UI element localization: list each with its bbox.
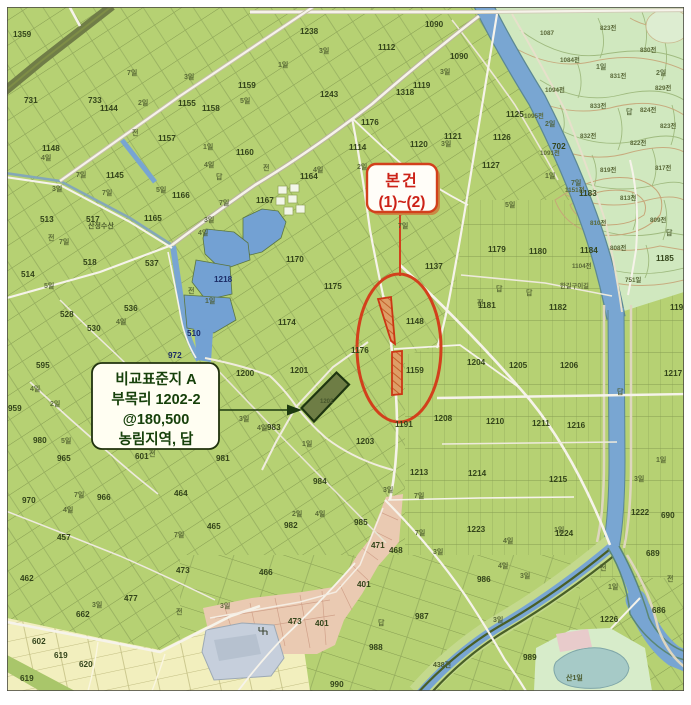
svg-text:7일: 7일 [127, 68, 137, 77]
svg-text:@180,500: @180,500 [123, 412, 190, 428]
svg-text:4일: 4일 [204, 160, 214, 169]
svg-text:2일: 2일 [292, 509, 302, 518]
svg-text:1216: 1216 [567, 421, 586, 430]
svg-text:1179: 1179 [488, 245, 506, 254]
svg-text:981: 981 [216, 454, 230, 463]
svg-text:3일: 3일 [52, 184, 62, 193]
svg-text:7일: 7일 [174, 530, 184, 539]
svg-text:662: 662 [76, 610, 90, 619]
svg-text:970: 970 [22, 496, 36, 505]
svg-text:1137: 1137 [425, 262, 443, 271]
svg-text:1084전: 1084전 [560, 55, 580, 64]
svg-text:1일: 1일 [596, 62, 606, 71]
svg-text:1일: 1일 [203, 142, 213, 151]
svg-text:3일: 3일 [204, 215, 214, 224]
svg-text:한길구이길: 한길구이길 [560, 281, 589, 290]
svg-text:601: 601 [135, 452, 149, 461]
svg-text:전: 전 [600, 563, 606, 572]
svg-text:부목리 1202-2: 부목리 1202-2 [111, 391, 200, 408]
svg-text:466: 466 [259, 568, 273, 577]
svg-text:619: 619 [54, 651, 68, 660]
svg-text:7일: 7일 [76, 170, 86, 179]
svg-text:1202: 1202 [320, 399, 334, 405]
svg-text:1208: 1208 [434, 414, 453, 423]
svg-text:1119: 1119 [413, 81, 431, 90]
svg-text:4일: 4일 [198, 228, 208, 237]
svg-text:1180: 1180 [529, 247, 547, 256]
svg-text:1148: 1148 [42, 144, 60, 153]
svg-text:808전: 808전 [610, 243, 627, 252]
svg-text:3일: 3일 [383, 485, 393, 494]
svg-text:1일: 1일 [554, 525, 564, 534]
svg-text:982: 982 [284, 521, 298, 530]
svg-text:530: 530 [87, 324, 101, 333]
svg-text:731: 731 [24, 96, 38, 105]
svg-text:4일: 4일 [30, 384, 40, 393]
svg-text:1127: 1127 [482, 161, 500, 170]
svg-text:답: 답 [526, 288, 533, 297]
svg-text:답: 답 [617, 387, 624, 396]
svg-text:1359: 1359 [13, 30, 32, 39]
svg-text:833전: 833전 [590, 101, 607, 110]
svg-text:4일: 4일 [315, 509, 325, 518]
svg-text:1223: 1223 [467, 525, 486, 534]
svg-text:1159: 1159 [406, 366, 424, 375]
svg-text:1211: 1211 [532, 419, 550, 428]
svg-text:1094전: 1094전 [545, 85, 565, 94]
svg-text:비교표준지 A: 비교표준지 A [115, 371, 197, 388]
svg-text:465: 465 [207, 522, 221, 531]
svg-text:1125: 1125 [506, 110, 524, 119]
svg-text:536: 536 [124, 304, 138, 313]
svg-text:답: 답 [216, 172, 223, 181]
svg-text:537: 537 [145, 259, 159, 268]
svg-text:3일: 3일 [520, 571, 530, 580]
svg-text:1200: 1200 [236, 369, 255, 378]
svg-text:4일: 4일 [116, 317, 126, 326]
svg-text:전: 전 [667, 574, 673, 583]
svg-text:산정수산: 산정수산 [88, 221, 114, 230]
svg-text:1일: 1일 [278, 60, 288, 69]
svg-text:401: 401 [315, 619, 329, 628]
svg-text:1일: 1일 [656, 455, 666, 464]
svg-text:4일: 4일 [503, 536, 513, 545]
svg-text:980: 980 [33, 436, 47, 445]
svg-text:1157: 1157 [158, 134, 176, 143]
svg-text:830전: 830전 [640, 45, 657, 54]
svg-text:1126: 1126 [493, 133, 511, 142]
svg-text:4일: 4일 [313, 165, 323, 174]
svg-text:813전: 813전 [620, 193, 637, 202]
svg-text:1243: 1243 [320, 90, 339, 99]
svg-text:510: 510 [187, 329, 201, 338]
svg-text:984: 984 [313, 477, 327, 486]
svg-text:959: 959 [8, 404, 22, 413]
svg-text:7일: 7일 [414, 491, 424, 500]
svg-text:7일: 7일 [102, 188, 112, 197]
svg-text:831전: 831전 [610, 71, 627, 80]
svg-text:620: 620 [79, 660, 93, 669]
svg-text:965: 965 [57, 454, 71, 463]
svg-text:1205: 1205 [509, 361, 528, 370]
svg-text:690: 690 [661, 511, 675, 520]
svg-text:824전: 824전 [640, 105, 657, 114]
svg-text:832전: 832전 [580, 131, 597, 140]
svg-text:1일: 1일 [205, 296, 215, 305]
svg-text:전: 전 [176, 607, 182, 616]
svg-text:1215: 1215 [549, 475, 568, 484]
svg-text:809전: 809전 [650, 215, 667, 224]
svg-text:1090: 1090 [425, 20, 444, 29]
svg-text:1일: 1일 [545, 171, 555, 180]
svg-text:2일: 2일 [656, 68, 666, 77]
svg-text:1204: 1204 [467, 358, 486, 367]
svg-text:1238: 1238 [300, 27, 319, 36]
svg-text:528: 528 [60, 310, 74, 319]
svg-text:3일: 3일 [634, 474, 644, 483]
svg-text:5일: 5일 [505, 200, 515, 209]
svg-text:7일: 7일 [571, 178, 581, 187]
svg-text:3일: 3일 [92, 600, 102, 609]
svg-text:3일: 3일 [441, 139, 451, 148]
svg-text:983: 983 [267, 423, 281, 432]
svg-text:전: 전 [132, 128, 138, 137]
svg-text:1160: 1160 [236, 148, 254, 157]
svg-text:본건: 본건 [385, 172, 418, 190]
svg-text:7일: 7일 [415, 528, 425, 537]
svg-text:810전: 810전 [590, 218, 607, 227]
svg-text:1144: 1144 [100, 104, 118, 113]
svg-text:829전: 829전 [655, 83, 672, 92]
svg-text:1148: 1148 [406, 317, 424, 326]
svg-text:988: 988 [369, 643, 383, 652]
svg-text:471: 471 [371, 541, 385, 550]
svg-text:1201: 1201 [290, 366, 309, 375]
svg-text:518: 518 [83, 258, 97, 267]
svg-text:답: 답 [496, 284, 503, 293]
svg-text:1104전: 1104전 [572, 261, 592, 270]
svg-text:1191: 1191 [395, 420, 413, 429]
svg-text:1일: 1일 [608, 582, 618, 591]
svg-text:3일: 3일 [319, 46, 329, 55]
svg-text:2일: 2일 [357, 162, 367, 171]
svg-text:전: 전 [477, 298, 483, 307]
svg-text:1165: 1165 [144, 214, 162, 223]
svg-text:817전: 817전 [655, 163, 672, 172]
svg-text:3일: 3일 [433, 547, 443, 556]
svg-text:1095전: 1095전 [524, 111, 544, 120]
svg-text:819전: 819전 [600, 165, 617, 174]
svg-text:985: 985 [354, 518, 368, 527]
svg-text:1112: 1112 [378, 43, 396, 52]
svg-text:1114: 1114 [349, 143, 367, 152]
svg-text:1일: 1일 [302, 439, 312, 448]
svg-text:답: 답 [666, 228, 673, 237]
svg-text:4일: 4일 [41, 153, 51, 162]
svg-text:1184: 1184 [580, 246, 598, 255]
svg-text:987: 987 [415, 612, 429, 621]
svg-text:7일: 7일 [398, 221, 408, 230]
svg-text:4일: 4일 [257, 423, 267, 432]
svg-text:1217: 1217 [664, 369, 683, 378]
svg-text:답: 답 [378, 618, 385, 627]
svg-text:1222: 1222 [631, 508, 650, 517]
svg-text:1176: 1176 [351, 346, 369, 355]
svg-text:1155: 1155 [178, 99, 196, 108]
svg-text:5일: 5일 [240, 96, 250, 105]
svg-text:7일: 7일 [219, 198, 229, 207]
svg-text:2일: 2일 [138, 98, 148, 107]
svg-text:3일: 3일 [184, 72, 194, 81]
svg-text:619: 619 [20, 674, 34, 683]
svg-text:전: 전 [48, 233, 54, 242]
svg-text:401: 401 [357, 580, 371, 589]
svg-text:462: 462 [20, 574, 34, 583]
svg-text:1091전: 1091전 [540, 148, 560, 157]
svg-text:602: 602 [32, 637, 46, 646]
svg-text:1174: 1174 [278, 318, 296, 327]
svg-text:1167: 1167 [256, 196, 274, 205]
svg-text:4일: 4일 [63, 505, 73, 514]
svg-text:전: 전 [188, 286, 194, 295]
svg-text:823전: 823전 [660, 121, 677, 130]
svg-text:1210: 1210 [486, 417, 505, 426]
svg-text:438전: 438전 [433, 660, 451, 669]
svg-text:3일: 3일 [440, 67, 450, 76]
svg-text:3일: 3일 [220, 601, 230, 610]
svg-text:1170: 1170 [286, 255, 304, 264]
svg-text:972: 972 [168, 351, 182, 360]
svg-text:4일: 4일 [498, 561, 508, 570]
svg-text:2일: 2일 [50, 399, 60, 408]
svg-text:686: 686 [652, 606, 666, 615]
svg-text:1087: 1087 [540, 30, 555, 37]
svg-text:1218: 1218 [214, 275, 233, 284]
svg-text:1206: 1206 [560, 361, 579, 370]
svg-text:5일: 5일 [44, 281, 54, 290]
svg-text:5일: 5일 [156, 185, 166, 194]
svg-text:전: 전 [263, 163, 269, 172]
svg-text:1158: 1158 [202, 104, 220, 113]
svg-text:1090: 1090 [450, 52, 469, 61]
svg-text:514: 514 [21, 270, 35, 279]
svg-text:1145: 1145 [106, 171, 124, 180]
svg-text:823전: 823전 [600, 23, 617, 32]
svg-text:1214: 1214 [468, 469, 487, 478]
svg-text:990: 990 [330, 680, 344, 689]
svg-text:2일: 2일 [545, 119, 555, 128]
svg-text:(1)~(2): (1)~(2) [379, 194, 426, 211]
svg-text:1182: 1182 [549, 303, 567, 312]
svg-text:473: 473 [288, 617, 302, 626]
svg-text:1121: 1121 [444, 132, 462, 141]
svg-text:689: 689 [646, 549, 660, 558]
svg-text:답: 답 [626, 107, 633, 116]
svg-text:457: 457 [57, 533, 71, 542]
svg-text:986: 986 [477, 575, 491, 584]
svg-text:1213: 1213 [410, 468, 429, 477]
svg-text:989: 989 [523, 653, 537, 662]
svg-text:1176: 1176 [361, 118, 379, 127]
svg-text:1185: 1185 [656, 254, 674, 263]
svg-text:473: 473 [176, 566, 190, 575]
svg-text:595: 595 [36, 361, 50, 370]
svg-text:1159: 1159 [238, 81, 256, 90]
svg-text:5일: 5일 [61, 436, 71, 445]
svg-text:464: 464 [174, 489, 188, 498]
svg-text:3일: 3일 [239, 414, 249, 423]
svg-text:1120: 1120 [410, 140, 428, 149]
svg-text:966: 966 [97, 493, 111, 502]
svg-text:전: 전 [149, 449, 155, 458]
svg-text:3일: 3일 [493, 615, 503, 624]
svg-text:513: 513 [40, 215, 54, 224]
svg-text:822전: 822전 [630, 138, 647, 147]
svg-text:1166: 1166 [172, 191, 190, 200]
svg-text:7일: 7일 [59, 237, 69, 246]
svg-text:농림지역, 답: 농림지역, 답 [119, 430, 194, 448]
svg-text:1175: 1175 [324, 282, 342, 291]
svg-text:1318: 1318 [396, 88, 415, 97]
svg-text:산1일: 산1일 [566, 673, 583, 682]
svg-text:1203: 1203 [356, 437, 375, 446]
svg-text:1226: 1226 [600, 615, 619, 624]
svg-text:477: 477 [124, 594, 138, 603]
svg-text:7일: 7일 [74, 490, 84, 499]
svg-text:751일: 751일 [625, 275, 642, 284]
svg-text:468: 468 [389, 546, 403, 555]
